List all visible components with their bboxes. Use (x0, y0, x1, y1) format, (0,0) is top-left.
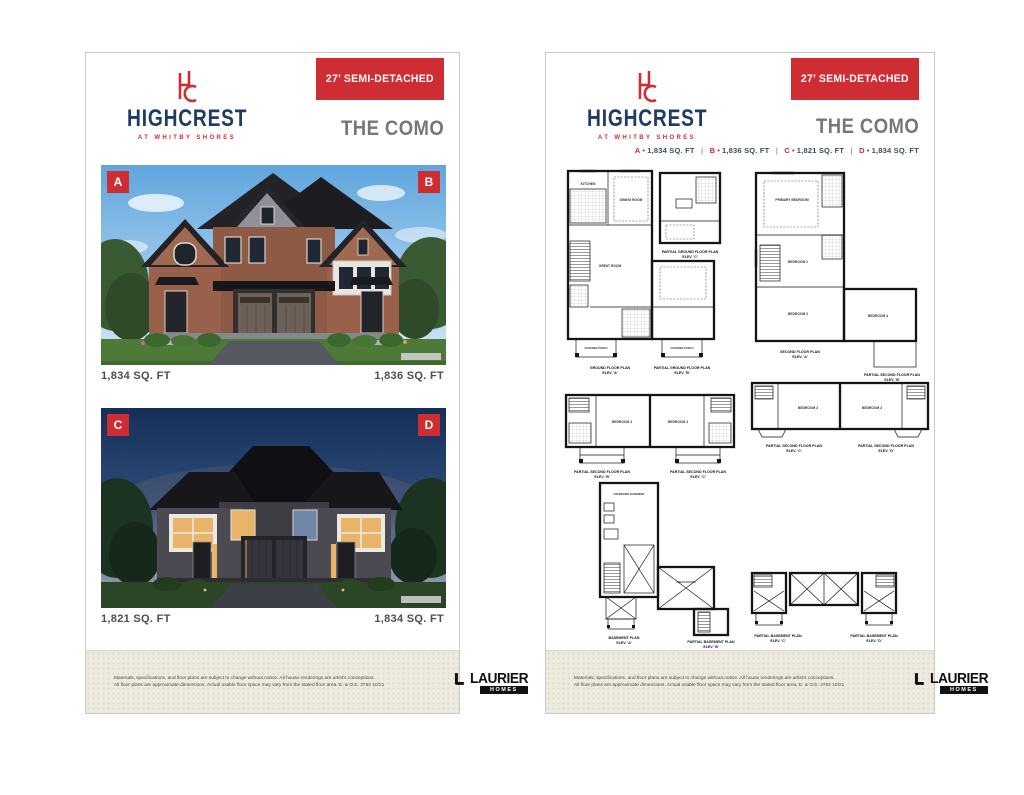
brand-tagline: AT WHITBY SHORES (112, 135, 262, 141)
sqft-c: 1,821 SQ. FT (101, 613, 171, 625)
driveway (209, 341, 339, 365)
floorplan-basement: UNFINISHED BASEMENT UNEXCAVATED BASEMENT… (596, 479, 748, 649)
sqft-row-ab: 1,834 SQ. FT 1,836 SQ. FT (101, 370, 444, 382)
svg-text:UNEXCAVATED: UNEXCAVATED (676, 580, 695, 584)
svg-text:BEDROOM 4: BEDROOM 4 (868, 314, 888, 318)
svg-text:PARTIAL SECOND FLOOR PLAN: PARTIAL SECOND FLOOR PLAN (670, 470, 726, 474)
laurier-homes-logo: LAURIER HOMES (452, 670, 528, 694)
photo-watermark (401, 596, 441, 603)
svg-text:ELEV. 'D': ELEV. 'D' (878, 449, 894, 453)
floorplan-second: PRIMARY BEDROOM BEDROOM 2 BEDROOM 3 BEDR… (752, 169, 928, 407)
svg-text:BEDROOM 3: BEDROOM 3 (798, 406, 818, 410)
svg-text:ELEV. 'A': ELEV. 'A' (602, 371, 618, 375)
svg-text:KITCHEN: KITCHEN (581, 182, 596, 186)
svg-text:BASEMENT PLAN: BASEMENT PLAN (609, 636, 640, 640)
svg-text:BEDROOM 3: BEDROOM 3 (788, 312, 808, 316)
sqft-a: 1,834 SQ. FT (101, 370, 171, 382)
svg-text:BEDROOM 4: BEDROOM 4 (668, 420, 688, 424)
svg-text:PARTIAL BASEMENT PLAN: PARTIAL BASEMENT PLAN (687, 640, 735, 644)
elevation-photo-cd: C D (101, 408, 446, 608)
page-footer: Materials, specifications, and floor pla… (86, 650, 459, 713)
unit-badge-a: A (107, 171, 129, 193)
product-type-banner: 27’ SEMI-DETACHED (791, 58, 919, 100)
svg-text:BEDROOM 4: BEDROOM 4 (612, 420, 632, 424)
svg-text:GREAT ROOM: GREAT ROOM (599, 264, 622, 268)
svg-text:ELEV. 'D': ELEV. 'D' (866, 639, 882, 643)
svg-text:UNFINISHED BASEMENT: UNFINISHED BASEMENT (613, 492, 645, 496)
svg-text:SECOND FLOOR PLAN: SECOND FLOOR PLAN (780, 350, 820, 354)
svg-text:ELEV. 'A': ELEV. 'A' (616, 641, 632, 645)
floorplan-partial-basement: PARTIAL BASEMENT PLAN ELEV. 'C' PARTIAL … (748, 569, 904, 651)
svg-text:PARTIAL SECOND FLOOR PLAN: PARTIAL SECOND FLOOR PLAN (766, 444, 822, 448)
svg-text:ELEV. 'C': ELEV. 'C' (770, 639, 786, 643)
brand-name: HIGHCREST (587, 105, 707, 133)
svg-text:PARTIAL BASEMENT PLAN: PARTIAL BASEMENT PLAN (850, 634, 898, 638)
elevation-photo-ab: A B (101, 165, 446, 365)
page-elevations: HIGHCREST AT WHITBY SHORES 27’ SEMI-DETA… (85, 52, 460, 714)
model-title: THE COMO (816, 115, 919, 139)
unit-badge-d: D (418, 414, 440, 436)
svg-text:GROUND FLOOR PLAN: GROUND FLOOR PLAN (590, 366, 631, 370)
svg-text:ELEV. 'A': ELEV. 'A' (792, 355, 808, 359)
driveway (211, 584, 337, 608)
house-rendering-day (101, 165, 446, 365)
house-rendering-dusk (101, 408, 446, 608)
hc-monogram-icon (172, 67, 202, 105)
svg-text:PARTIAL GROUND FLOOR PLAN: PARTIAL GROUND FLOOR PLAN (654, 366, 711, 370)
svg-text:PARTIAL SECOND FLOOR PLAN: PARTIAL SECOND FLOOR PLAN (858, 444, 914, 448)
svg-text:ELEV. 'C': ELEV. 'C' (682, 255, 698, 259)
laurier-swoosh-icon (452, 672, 465, 687)
floorplan-partial-second-left: BEDROOM 4 BEDROOM 4 PARTIAL SECOND FLOOR… (562, 391, 738, 481)
unit-badge-b: B (418, 171, 440, 193)
svg-text:PARTIAL SECOND FLOOR PLAN: PARTIAL SECOND FLOOR PLAN (864, 373, 920, 377)
svg-text:PARTIAL SECOND FLOOR PLAN: PARTIAL SECOND FLOOR PLAN (574, 470, 630, 474)
svg-text:ELEV. 'B': ELEV. 'B' (703, 645, 719, 649)
photo-watermark (401, 353, 441, 360)
floorplan-partial-second-right: BEDROOM 3 BEDROOM 3 PARTIAL SECOND FLOOR… (748, 379, 932, 457)
svg-text:ELEV. 'B': ELEV. 'B' (674, 371, 690, 375)
svg-text:DINING ROOM: DINING ROOM (620, 198, 643, 202)
brand-logo: HIGHCREST AT WHITBY SHORES (112, 67, 262, 141)
svg-text:ELEV. 'C': ELEV. 'C' (786, 449, 802, 453)
product-type-banner: 27’ SEMI-DETACHED (316, 58, 444, 100)
sqft-d: 1,834 SQ. FT (374, 613, 444, 625)
floorplan-partial-ground: PARTIAL GROUND FLOOR PLAN ELEV. 'C' (656, 169, 724, 265)
brand-logo: HIGHCREST AT WHITBY SHORES (572, 67, 722, 141)
svg-text:COVERED PORCH: COVERED PORCH (671, 346, 694, 350)
page-footer: Materials, specifications, and floor pla… (546, 650, 934, 713)
unit-badge-c: C (107, 414, 129, 436)
brochure-canvas: HIGHCREST AT WHITBY SHORES 27’ SEMI-DETA… (0, 0, 1024, 795)
model-title: THE COMO (341, 117, 444, 141)
sqft-row-cd: 1,821 SQ. FT 1,834 SQ. FT (101, 613, 444, 625)
svg-text:PARTIAL BASEMENT PLAN: PARTIAL BASEMENT PLAN (754, 634, 802, 638)
page-floorplans: HIGHCREST AT WHITBY SHORES 27’ SEMI-DETA… (545, 52, 935, 714)
laurier-homes-logo: LAURIER HOMES (912, 670, 988, 694)
disclaimer-text: Materials, specifications, and floor pla… (114, 675, 384, 689)
sqft-b: 1,836 SQ. FT (374, 370, 444, 382)
svg-text:PRIMARY BEDROOM: PRIMARY BEDROOM (775, 198, 808, 202)
sqft-summary: A•1,834 SQ. FT | B•1,836 SQ. FT | C•1,82… (635, 146, 919, 155)
brand-tagline: AT WHITBY SHORES (572, 135, 722, 141)
svg-text:PARTIAL GROUND FLOOR PLAN: PARTIAL GROUND FLOOR PLAN (662, 250, 719, 254)
svg-text:BEDROOM 3: BEDROOM 3 (862, 406, 882, 410)
brand-name: HIGHCREST (127, 105, 247, 133)
svg-text:BEDROOM 2: BEDROOM 2 (788, 260, 808, 264)
svg-text:COVERED PORCH: COVERED PORCH (585, 346, 608, 350)
laurier-swoosh-icon (912, 672, 925, 687)
disclaimer-text: Materials, specifications, and floor pla… (574, 675, 844, 689)
hc-monogram-icon (632, 67, 662, 105)
